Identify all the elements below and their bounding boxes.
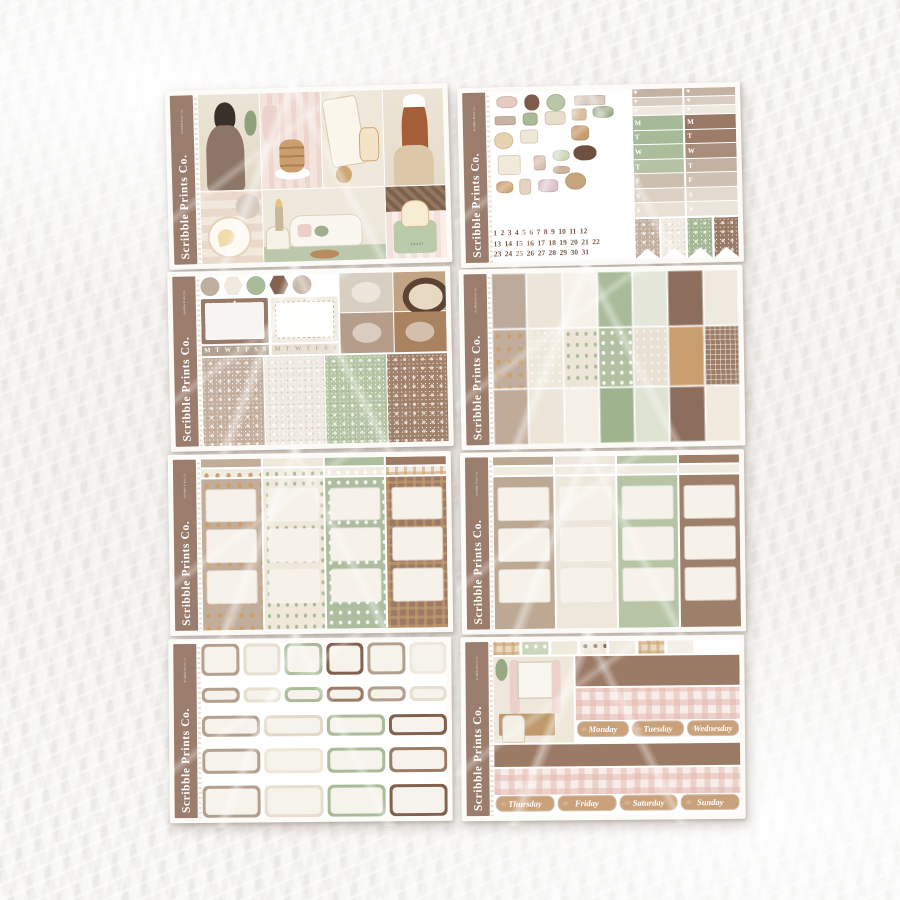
gaming-hands-photo-sticker [340, 313, 393, 353]
white-label [500, 569, 550, 602]
pajama-shirt-sticker [497, 155, 521, 176]
label-fill [392, 750, 444, 769]
full-box-sticker [633, 271, 668, 327]
rounded-label-sticker [389, 713, 447, 735]
label-box-row [202, 713, 447, 736]
brand-band: Scribble Prints Co. Scribble Prints Co. [465, 642, 490, 816]
rounded-label-sticker [202, 748, 260, 774]
white-label [624, 568, 674, 601]
full-box-sticker [704, 326, 739, 385]
croissant-sticker [496, 181, 513, 193]
day-script-row-1: MondayTuesdayWednesday [576, 721, 740, 736]
glasses-sticker [553, 166, 570, 174]
header-strip-sticker [555, 456, 615, 465]
day-script-sticker: Friday [558, 796, 615, 810]
weekday-letter: M [204, 347, 210, 354]
sticker-sheet-half-boxes: Scribble Prints Co. Scribble Prints Co. [168, 637, 453, 823]
weekday-letter: S [263, 346, 267, 353]
quarter-box-sticker [493, 477, 555, 630]
sticker-sheet-glitter-and-marquees: Scribble Prints Co. Scribble Prints Co. … [167, 266, 454, 452]
heart-checkbox-strip: ♥ [684, 87, 735, 96]
teddy-bear-sticker [524, 94, 540, 111]
quarter-box-sticker [679, 474, 741, 627]
heart-checkbox-strip: ♥ [632, 88, 683, 97]
toaster-sticker [545, 111, 566, 125]
pancake-stack-sticker [570, 125, 588, 141]
full-box-sticker [562, 272, 597, 328]
game-controller-green-sticker [523, 113, 539, 126]
full-box-sticker [634, 327, 669, 386]
heart-icon: ♥ [687, 98, 691, 104]
flag-sticker [687, 217, 712, 258]
rounded-label-sticker [284, 643, 322, 675]
desk-scene-photo-sticker [339, 272, 392, 312]
shape-stickers-row [200, 273, 338, 296]
heart-icon: ♥ [687, 107, 691, 113]
heart-checkbox-strip: ♥ [632, 106, 683, 115]
header-strip-sticker [263, 468, 323, 477]
marquee-column: ★MTWTFSS [201, 298, 269, 356]
brand-name: Scribble Prints Co. [471, 519, 484, 624]
date-number-stickers: 1 2 3 4 5 6 7 8 9 10 11 1213 14 15 16 17… [493, 225, 633, 261]
washi-strip-brown [575, 655, 739, 686]
label-fill [330, 750, 382, 769]
white-label [207, 530, 256, 562]
glitter-swatch [325, 354, 387, 444]
rounded-label-sticker [327, 784, 386, 817]
label-box-row [202, 686, 447, 703]
quarter-box-sticker [617, 475, 679, 628]
weekday-letter: F [688, 176, 692, 184]
header-strip-sticker [555, 466, 615, 475]
art-cell-living-room [262, 187, 386, 263]
washi-strip-plaid [576, 687, 740, 720]
rounded-label-sticker [264, 714, 322, 736]
white-label [392, 527, 441, 559]
brand-band: Scribble Prints Co. Scribble Prints Co. [464, 274, 490, 445]
white-label [270, 570, 319, 602]
quarter-box-sticker [263, 478, 325, 630]
white-label [330, 488, 379, 520]
edge-micro-text: Scribble Prints Co. [183, 657, 186, 682]
heart-checkbox-strip: ♥ [632, 97, 683, 106]
rounded-label-sticker [201, 644, 239, 676]
white-label [561, 487, 611, 520]
glitter-swatch-row [202, 353, 449, 447]
washi-strip-gingham [494, 767, 740, 795]
full-box-sticker [599, 387, 634, 443]
header-strip-sticker [263, 458, 323, 467]
full-box-sticker [493, 330, 528, 389]
mug-sticker [533, 155, 546, 170]
marquee-label-stickers: ★MTWTFSS★MTWTFSS [201, 296, 339, 355]
header-strip-sticker [386, 456, 446, 465]
brand-band: Scribble Prints Co. Scribble Prints Co. [465, 457, 490, 629]
day-script-sticker: Tuesday [633, 721, 683, 735]
date-cover-column-green: ♥♥♥ MTWTFSS [632, 88, 686, 217]
date-cover-column-brown: ♥♥♥ MTWTFSS [684, 87, 738, 216]
weekday-letter: S [636, 192, 640, 200]
weekday-letter-strip: S [687, 201, 738, 216]
rounded-label-sticker [368, 686, 406, 701]
weekday-letter-strip: M [685, 114, 736, 129]
washi-sample-sticker [574, 95, 605, 106]
glitter-swatch [202, 357, 264, 447]
full-box-sticker [705, 385, 740, 441]
star-icon: ★ [232, 300, 236, 305]
full-box-sticker [670, 386, 705, 442]
weekday-letter: S [324, 345, 328, 352]
label-fill [246, 646, 278, 672]
heart-icon: ♥ [634, 108, 638, 114]
washi-strip-brown [494, 743, 740, 767]
white-label [562, 569, 612, 602]
white-label [623, 486, 673, 519]
quarter-box-sticker [386, 476, 448, 628]
quarter-box-sticker [201, 479, 263, 631]
sage-heart-column [324, 457, 386, 629]
edge-micro-text: Scribble Prints Co. [473, 106, 476, 131]
flag-sticker [635, 219, 660, 260]
weekday-letter-strip: S [687, 187, 738, 202]
header-strip-sticker [679, 454, 739, 463]
cake-slice-sticker [571, 108, 587, 121]
weekday-letter: T [688, 161, 693, 169]
cat-ear-headphones-sticker [553, 150, 570, 162]
weekday-letter: T [285, 346, 289, 353]
full-box-sticker [597, 271, 632, 327]
brand-name: Scribble Prints Co. [471, 706, 484, 811]
cream-washi [609, 641, 635, 654]
hexagon-cream-sticker [223, 276, 242, 295]
date-row: 23 24 25 26 27 28 29 30 31 [494, 247, 634, 261]
cream-washi [551, 641, 577, 654]
art-cell-pajamas-toast [321, 90, 384, 188]
white-label [561, 528, 611, 561]
white-label [499, 528, 549, 561]
taupe-butterfly-column [201, 459, 263, 631]
art-cell-bedroom-desk [493, 656, 574, 743]
label-fill [329, 717, 381, 732]
label-fill [268, 788, 320, 814]
marquee-column: ★MTWTFSS [271, 296, 339, 354]
art-cell-man-with-cocoa [198, 93, 261, 191]
header-strip-sticker [617, 465, 677, 474]
bear-washi [580, 641, 606, 654]
label-box-row [202, 784, 447, 818]
full-box-sticker [598, 328, 633, 387]
label-fill [392, 716, 444, 731]
white-label [269, 529, 318, 561]
hamster-bed-photo-sticker [393, 271, 446, 311]
white-label [685, 526, 735, 559]
rounded-label-sticker [202, 785, 261, 818]
heart-checkbox-strip: ♥ [685, 105, 736, 114]
washi-square-row [493, 640, 739, 655]
brand-name: Scribble Prints Co. [179, 336, 193, 441]
slippers-green-sticker [592, 106, 613, 118]
flag-stickers [635, 217, 739, 259]
weekday-letter: W [688, 147, 695, 155]
quarter-box-sticker [555, 476, 617, 629]
weekday-letter: S [636, 206, 640, 214]
highlight [352, 322, 382, 343]
rounded-label-sticker [409, 642, 447, 674]
deco-sticker-field [490, 89, 632, 218]
photo-sticker-grid [339, 271, 446, 353]
full-box-sticker [529, 388, 564, 444]
cream-washi [667, 640, 693, 653]
brand-name: Scribble Prints Co. [179, 521, 192, 626]
brand-band: Scribble Prints Co. Scribble Prints Co. [462, 93, 489, 263]
glitter-swatch [263, 355, 325, 445]
art-cell-girl-headphones [382, 88, 445, 186]
quarter-box-columns [493, 454, 741, 629]
rounded-label-sticker [243, 688, 281, 703]
label-fill [205, 718, 257, 733]
sticker-sheet-washi-and-day-scripts: Scribble Prints Co. Scribble Prints Co. … [460, 635, 746, 821]
brand-name: Scribble Prints Co. [469, 153, 483, 258]
white-label [393, 568, 442, 600]
white-label [499, 487, 549, 520]
folded-blanket-sticker [520, 129, 538, 143]
art-cell-pancakes [259, 92, 322, 190]
day-script-sticker: Wednesday [688, 721, 738, 735]
header-strip-sticker [201, 469, 261, 478]
weekday-letter-strip: S [634, 188, 685, 203]
sticker-sheet-solid-quarter-boxes: Scribble Prints Co. Scribble Prints Co. [460, 449, 746, 634]
sticker-sheet-photo-boxes: Scribble Prints Co. Scribble Prints Co. … [165, 83, 453, 270]
label-fill [412, 645, 444, 671]
white-label [331, 569, 380, 601]
weekday-letter: T [306, 345, 310, 352]
cinnamon-roll-sticker [565, 172, 586, 190]
label-box-row [202, 747, 447, 774]
white-label [331, 528, 380, 560]
edge-micro-text: Scribble Prints Co. [475, 655, 478, 680]
weekday-letter: M [274, 346, 280, 353]
weekday-letter: T [687, 132, 692, 140]
white-label [686, 567, 736, 600]
brand-band: Scribble Prints Co. Scribble Prints Co. [172, 276, 199, 446]
marquee-inner [275, 300, 335, 338]
label-fill [267, 751, 319, 770]
product-photo: Scribble Prints Co. Scribble Prints Co. … [0, 0, 900, 900]
sticker-sheet-patterned-quarter-boxes: Scribble Prints Co. Scribble Prints Co. [168, 451, 453, 636]
weekday-letter-strip: W [686, 143, 737, 158]
full-box-sticker [703, 270, 738, 326]
rounded-label-sticker [202, 688, 240, 703]
quarter-box-columns [201, 456, 448, 630]
heart-checkbox-strip: ♥ [685, 96, 736, 105]
brand-band: Scribble Prints Co. Scribble Prints Co. [173, 644, 198, 818]
full-box-sticker [669, 327, 704, 386]
circle-sage-sticker [246, 275, 265, 294]
weekday-letter-strip: T [633, 130, 684, 145]
chocolate-roll-sticker [574, 145, 597, 161]
cinnamon-bun-photo-sticker [394, 311, 447, 351]
label-fill [287, 646, 319, 672]
plaid-washi [493, 642, 519, 655]
weekday-letter-strip: T [633, 159, 684, 174]
cream-sprig-column [263, 458, 325, 630]
weekday-letter-strip: T [685, 128, 736, 143]
art-cell-breakfast-flatlay [200, 191, 263, 264]
day-script-sticker: Sunday [682, 795, 739, 809]
rounded-label-sticker [265, 785, 324, 818]
edge-micro-text: Scribble Prints Co. [180, 109, 183, 134]
weekday-letter: F [315, 345, 319, 352]
full-box-sticker [494, 389, 529, 445]
weekday-letter: T [215, 347, 219, 354]
quarter-box-sticker [325, 477, 387, 629]
full-box-sticker [635, 386, 670, 442]
day-script-row-2: ThursdayFridaySaturdaySunday [495, 795, 741, 811]
white-label [623, 527, 673, 560]
brand-band: Scribble Prints Co. Scribble Prints Co. [170, 95, 198, 265]
header-strip-sticker [679, 464, 739, 473]
weekday-letter-strip: S [634, 203, 685, 218]
rounded-label-rows [201, 642, 448, 818]
rounded-label-sticker [409, 686, 447, 701]
quarter-box-column [617, 455, 679, 628]
label-fill [412, 689, 444, 698]
weekday-letter-strip: W [633, 144, 684, 159]
white-label [392, 487, 441, 519]
sage-heart-washi [522, 641, 548, 654]
rounded-label-sticker [367, 642, 405, 674]
weekday-letter: S [689, 205, 693, 213]
highlight [351, 282, 381, 303]
heart-icon: ♥ [686, 89, 690, 95]
glitter-swatch [386, 353, 448, 443]
switch-console-sticker [495, 116, 516, 125]
white-label [208, 571, 257, 603]
brown-plaid-column [386, 456, 448, 628]
label-fill [329, 646, 361, 672]
weekday-letter: F [245, 346, 249, 353]
label-fill [371, 689, 403, 698]
circle-taupe-glitter-sticker [200, 276, 219, 295]
full-box-sticker [563, 328, 598, 387]
slippers-pink-sticker [496, 96, 517, 109]
weekday-letter: F [636, 177, 640, 185]
weekday-letter-strip: M [632, 115, 683, 130]
header-strip-sticker [324, 457, 384, 466]
day-script-sticker: Saturday [620, 795, 677, 809]
header-strip-sticker [493, 467, 553, 476]
game-controller-pink-sticker [538, 179, 558, 192]
weekday-letter-strip: T [686, 158, 737, 173]
white-label [207, 489, 256, 521]
label-fill [205, 691, 237, 700]
rounded-label-sticker [327, 747, 385, 773]
label-fill [392, 787, 444, 813]
label-fill [288, 690, 320, 699]
edge-micro-text: Scribble Prints Co. [183, 473, 186, 498]
breakfast-plate-sticker [546, 93, 566, 111]
sticker-sheet-full-boxes: Scribble Prints Co. Scribble Prints Co. [458, 265, 745, 451]
hexagon-brown-sticker [269, 275, 288, 294]
marquee-label-sticker: ★ [201, 298, 269, 344]
header-strip-sticker [201, 459, 261, 468]
full-box-sticker [492, 273, 527, 329]
header-strip-sticker [324, 467, 384, 476]
weekday-letter: W [295, 345, 302, 352]
full-box-sticker [564, 388, 599, 444]
label-box-row [201, 642, 446, 676]
edge-micro-text: Scribble Prints Co. [183, 290, 186, 315]
white-label [685, 485, 735, 518]
rounded-label-sticker [389, 784, 448, 817]
day-script-sticker: Thursday [497, 796, 554, 810]
label-fill [267, 717, 319, 732]
quarter-box-column [555, 456, 617, 629]
weekday-letter: M [687, 118, 694, 126]
star-icon: ★ [302, 298, 306, 303]
weekday-letter: T [635, 133, 640, 141]
weekday-letter: S [689, 191, 693, 199]
label-fill [246, 691, 278, 700]
rounded-label-sticker [326, 643, 364, 675]
sticker-sheet-deco-and-date-covers: Scribble Prints Co. Scribble Prints Co. … [457, 82, 744, 268]
plaid-washi [638, 640, 664, 653]
rounded-label-sticker [326, 714, 384, 736]
weekday-letters-strip: MTWTFSS [202, 344, 269, 355]
header-strip-sticker [386, 466, 446, 475]
weekday-letter: S [333, 345, 337, 352]
weekday-letters-strip: MTWTFSS [272, 343, 339, 354]
marquee-inner [205, 302, 265, 340]
edge-micro-text: Scribble Prints Co. [474, 287, 477, 312]
circle-taupe-sticker [292, 274, 311, 293]
hamster-donut [402, 277, 448, 316]
label-fill [330, 787, 382, 813]
full-box-sticker [528, 329, 563, 388]
label-fill [370, 645, 402, 671]
label-fill [329, 690, 361, 699]
weekday-letter: S [254, 346, 258, 353]
weekday-letter: W [635, 148, 642, 156]
brand-name: Scribble Prints Co. [470, 335, 484, 440]
flag-sticker [661, 218, 686, 259]
weekday-letter: T [635, 163, 640, 171]
water-flask-sticker [519, 178, 532, 195]
full-box-grid [492, 270, 741, 445]
weekday-letter: M [634, 119, 641, 127]
brand-name: Scribble Prints Co. [177, 154, 192, 259]
header-strip-sticker [493, 457, 553, 466]
label-fill [205, 751, 257, 770]
rounded-label-sticker [243, 643, 281, 675]
egg-plate-sticker [494, 132, 514, 149]
edge-micro-text: Scribble Prints Co. [475, 471, 478, 496]
brand-band: Scribble Prints Co. Scribble Prints Co. [173, 460, 198, 631]
full-box-sticker [668, 270, 703, 326]
header-strip-sticker [617, 455, 677, 464]
label-fill [206, 788, 258, 814]
weekday-letter-strip: F [686, 172, 737, 187]
highlight [405, 321, 435, 342]
day-script-sticker: Monday [578, 722, 628, 736]
full-box-sticker [527, 273, 562, 329]
weekday-letter: W [225, 347, 232, 354]
weekday-letter: T [236, 347, 240, 354]
heart-icon: ♥ [634, 90, 638, 96]
art-cell-toaster-bed: TOAST [385, 186, 447, 260]
quarter-box-column [679, 454, 741, 627]
rounded-label-sticker [326, 687, 364, 702]
